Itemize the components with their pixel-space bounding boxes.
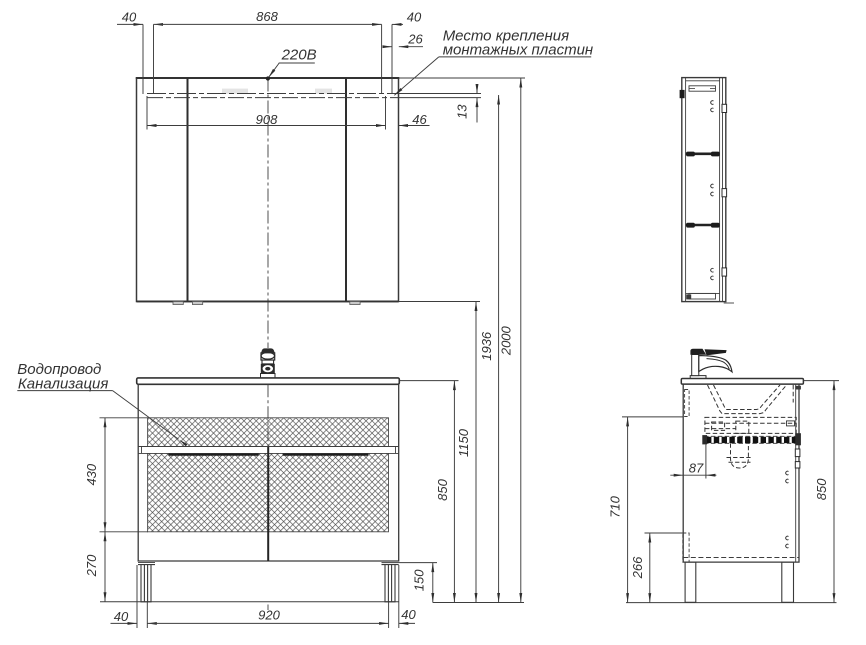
svg-text:850: 850 <box>814 478 829 500</box>
svg-text:Канализация: Канализация <box>18 376 109 393</box>
svg-text:46: 46 <box>412 112 427 127</box>
svg-text:868: 868 <box>256 9 278 24</box>
svg-text:850: 850 <box>435 478 450 500</box>
svg-text:270: 270 <box>84 554 99 577</box>
svg-text:87: 87 <box>689 461 704 476</box>
svg-text:40: 40 <box>114 609 129 624</box>
svg-text:13: 13 <box>455 104 470 119</box>
svg-text:920: 920 <box>258 608 280 623</box>
svg-text:40: 40 <box>401 607 416 622</box>
svg-text:монтажных пластин: монтажных пластин <box>443 42 593 59</box>
svg-text:430: 430 <box>84 463 99 485</box>
svg-text:710: 710 <box>608 495 623 517</box>
svg-text:2000: 2000 <box>499 325 514 356</box>
svg-text:220В: 220В <box>281 46 317 63</box>
svg-text:40: 40 <box>122 10 137 25</box>
svg-text:150: 150 <box>412 569 427 591</box>
svg-text:1936: 1936 <box>479 331 494 361</box>
svg-text:1150: 1150 <box>456 428 471 457</box>
svg-text:266: 266 <box>630 556 645 579</box>
svg-text:26: 26 <box>407 32 423 47</box>
svg-text:40: 40 <box>407 10 422 25</box>
svg-text:908: 908 <box>256 112 278 127</box>
